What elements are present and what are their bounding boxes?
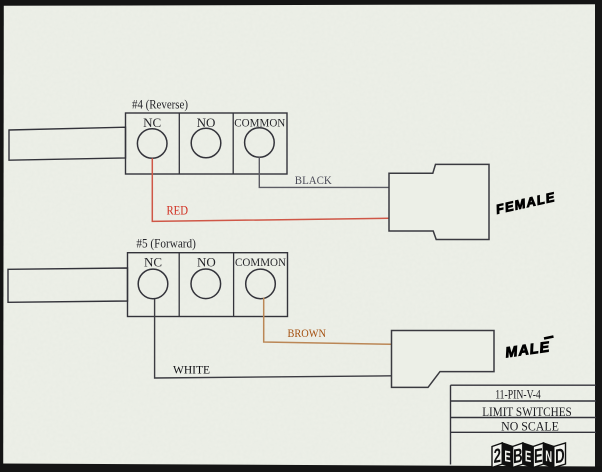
svg-text:#4 (Reverse): #4 (Reverse) (132, 98, 188, 112)
svg-text:2: 2 (494, 444, 501, 468)
svg-text:B: B (513, 444, 522, 468)
svg-text:WHITE: WHITE (173, 364, 210, 376)
svg-text:LIMIT SWITCHES: LIMIT SWITCHES (482, 404, 572, 419)
svg-text:RED: RED (167, 203, 189, 218)
svg-text:D: D (555, 444, 564, 468)
svg-text:NC: NC (144, 254, 162, 269)
svg-text:NO SCALE: NO SCALE (501, 418, 559, 433)
svg-text:COMMON: COMMON (235, 255, 286, 269)
svg-text:E: E (504, 447, 511, 466)
svg-text:BROWN: BROWN (288, 326, 327, 340)
svg-text:E: E (525, 447, 532, 466)
svg-text:E: E (534, 444, 543, 468)
svg-text:NO: NO (197, 254, 216, 269)
svg-text:N: N (545, 447, 552, 466)
svg-text:11-PIN-V-4: 11-PIN-V-4 (495, 386, 541, 401)
svg-text:BLACK: BLACK (295, 173, 332, 187)
svg-text:#5 (Forward): #5 (Forward) (136, 237, 196, 251)
svg-text:NC: NC (143, 115, 161, 130)
